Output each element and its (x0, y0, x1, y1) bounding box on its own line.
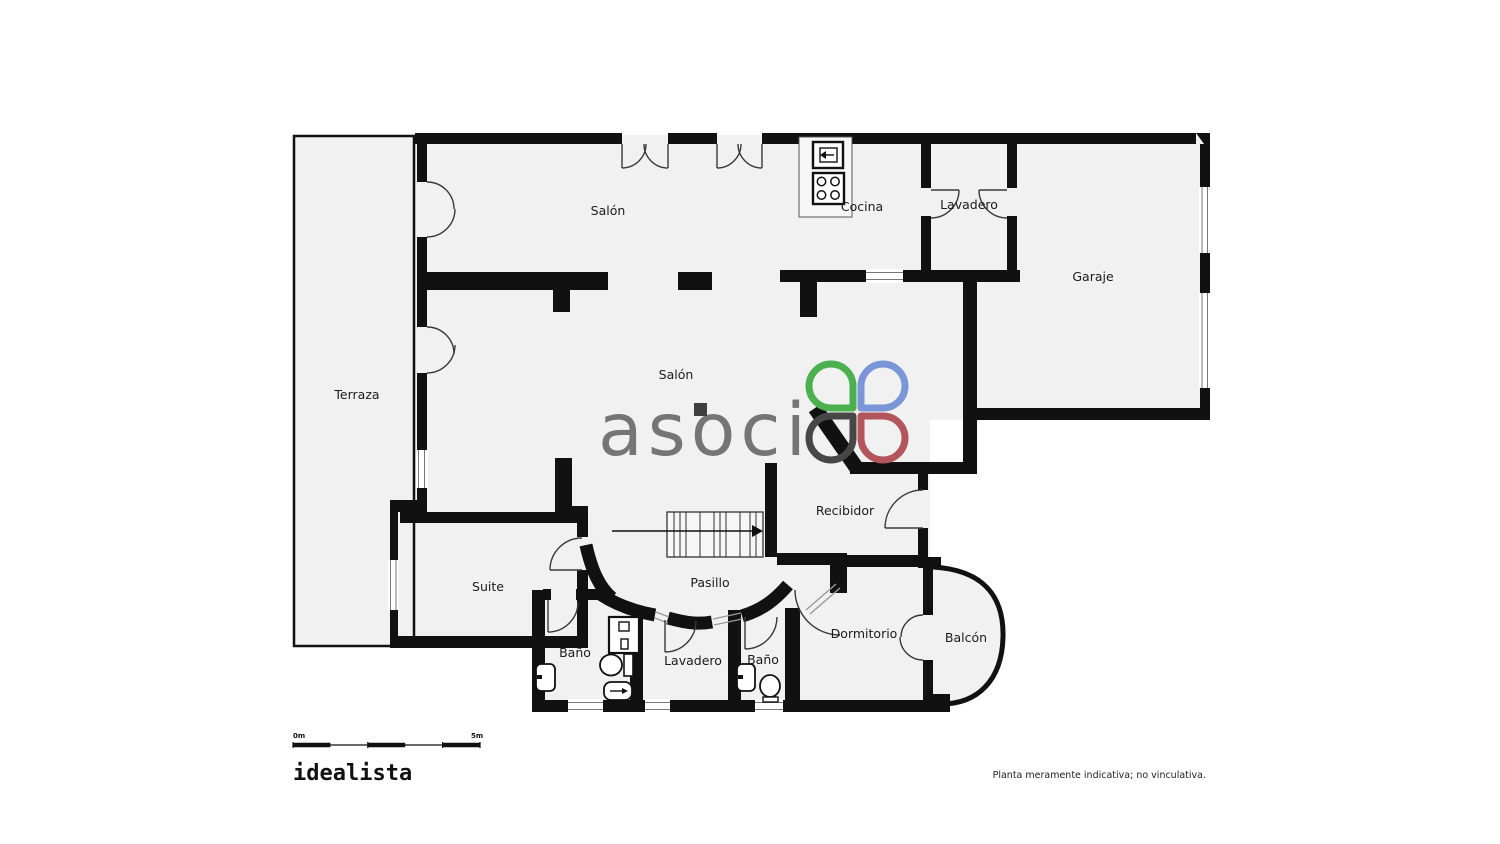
idealista-logo: idealista (293, 761, 412, 786)
room-label-salon-main: Salón (659, 367, 694, 382)
disclaimer-text: Planta meramente indicativa; no vinculat… (993, 770, 1206, 781)
watermark-text: asoci (598, 388, 811, 473)
room-label-bano-suite: Baño (559, 645, 591, 660)
room-label-dormitorio: Dormitorio (831, 626, 898, 641)
toilet-icon (760, 675, 780, 702)
room-label-balcon: Balcón (945, 630, 987, 645)
toilet-icon (600, 654, 633, 676)
oven-icon (813, 142, 843, 168)
hob-icon (813, 173, 844, 204)
room-label-lavadero-top: Lavadero (940, 197, 998, 212)
watermark-square-dot (694, 403, 707, 416)
room-label-suite: Suite (472, 579, 504, 594)
room-label-salon-top: Salón (591, 203, 626, 218)
window (416, 450, 428, 488)
window (866, 269, 903, 283)
window (568, 699, 603, 713)
scale-bar: 0m 5m (293, 732, 483, 748)
scale-label-end: 5m (471, 732, 483, 740)
scale-label-start: 0m (293, 732, 305, 740)
room-label-pasillo: Pasillo (690, 575, 729, 590)
room-label-terraza: Terraza (333, 387, 379, 402)
room-label-cocina: Cocina (841, 199, 883, 214)
floor-plan: Terraza Salón Cocina Lavadero Garaje Sal… (0, 0, 1500, 844)
room-label-recibidor: Recibidor (816, 503, 875, 518)
washbasin-icon (609, 617, 639, 653)
wall-sink-icon (737, 664, 755, 691)
window (1199, 187, 1211, 253)
window (388, 560, 399, 610)
window (1199, 293, 1211, 388)
room-label-bano-small: Baño (747, 652, 779, 667)
wall-sink-icon (536, 664, 555, 691)
window (645, 699, 670, 713)
floorplan-page: Terraza Salón Cocina Lavadero Garaje Sal… (0, 0, 1500, 844)
bidet-icon (604, 682, 632, 700)
room-label-garaje: Garaje (1072, 269, 1114, 284)
room-label-lavadero-bottom: Lavadero (664, 653, 722, 668)
